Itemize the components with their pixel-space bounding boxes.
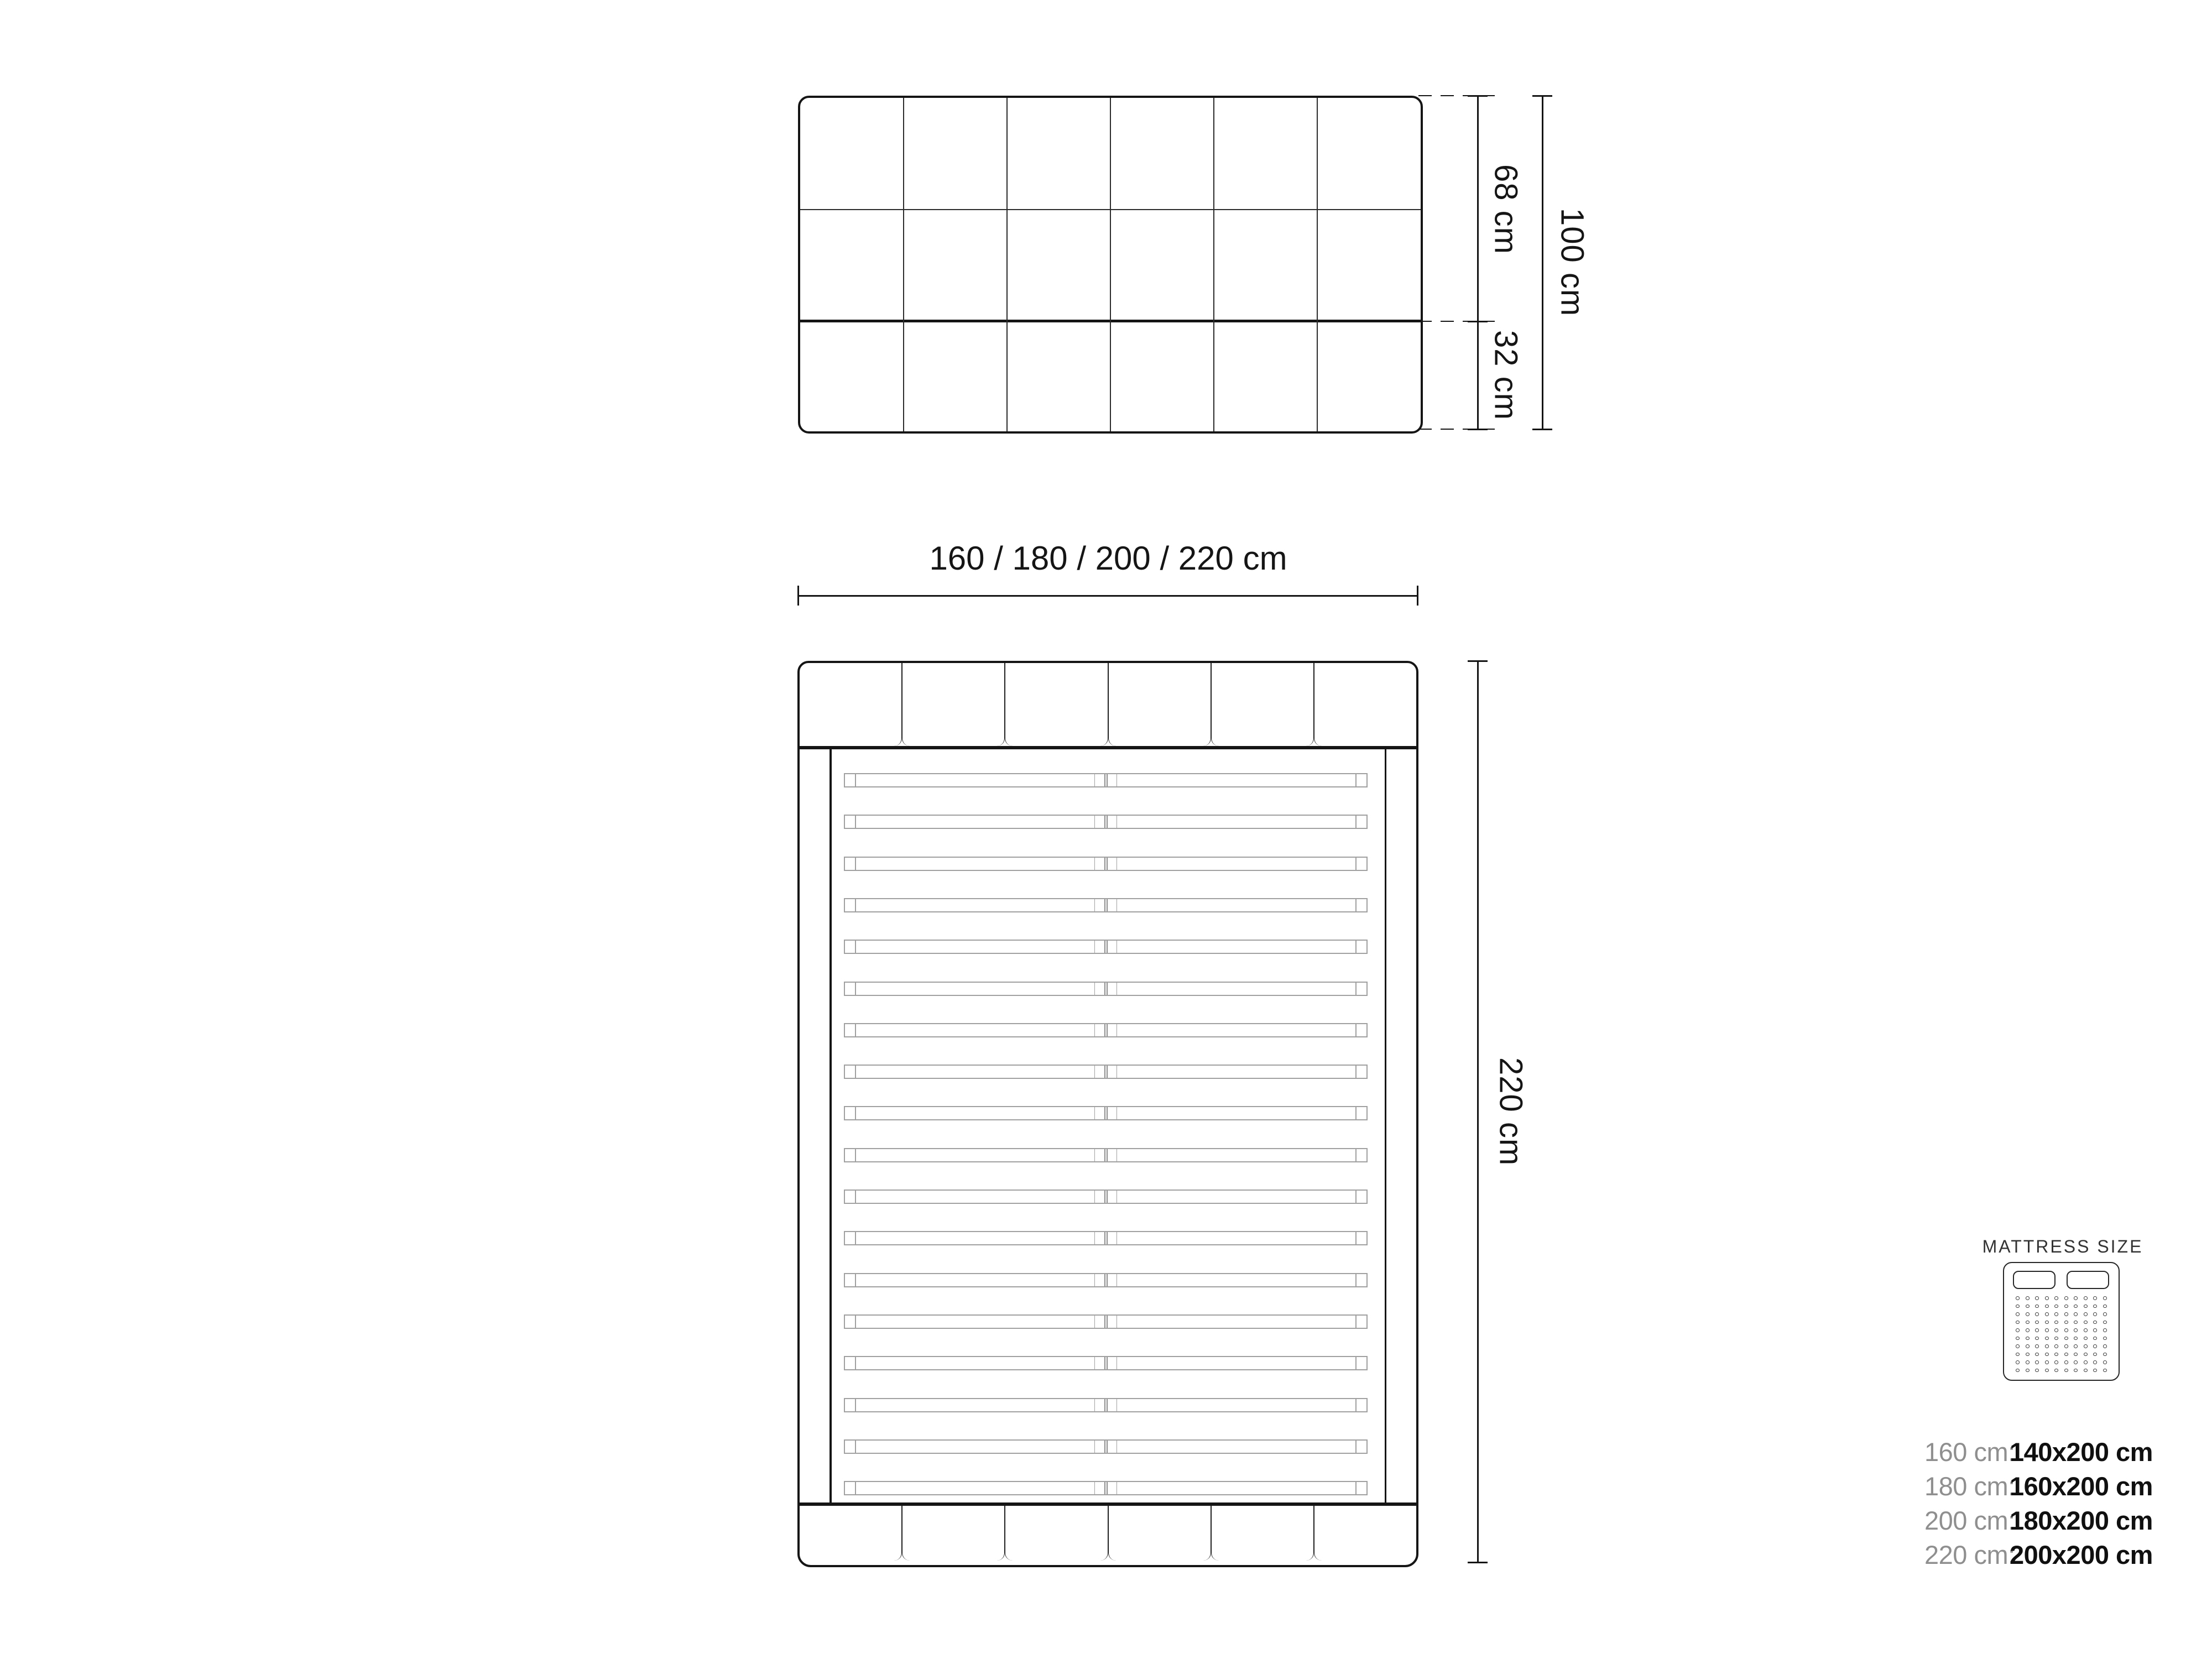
slat-joint-line xyxy=(855,1024,856,1036)
dimension-tick xyxy=(1532,95,1552,97)
pillow-icon xyxy=(2067,1271,2109,1289)
slat-joint-line xyxy=(1094,1482,1095,1494)
mattress-dot xyxy=(2016,1353,2020,1357)
mattress-dot xyxy=(2026,1360,2030,1364)
slat-joint-line xyxy=(1117,1024,1118,1036)
slat xyxy=(844,1023,1368,1037)
slat-joint-line xyxy=(1107,1357,1108,1369)
mattress-dot xyxy=(2093,1337,2097,1340)
mattress-dot xyxy=(2064,1337,2068,1340)
mattress-dot xyxy=(2026,1353,2030,1357)
slat xyxy=(844,1356,1368,1370)
mattress-size-row: 220 cm:200x200 cm xyxy=(1924,1540,2135,1574)
mattress-size-list: 160 cm:140x200 cm180 cm:160x200 cm200 cm… xyxy=(1924,1437,2135,1574)
mattress-dot xyxy=(2084,1305,2088,1308)
slat-area xyxy=(800,663,1416,1565)
mattress-dot xyxy=(2054,1344,2058,1348)
slat-joint-line xyxy=(1107,1107,1108,1119)
headboard-column-seam xyxy=(1213,98,1214,431)
mattress-dot xyxy=(2045,1360,2049,1364)
mattress-dot xyxy=(2016,1360,2020,1364)
mattress-dot xyxy=(2016,1369,2020,1373)
mattress-size-value: 180x200 cm xyxy=(2010,1505,2153,1536)
slat-joint-line xyxy=(1117,1316,1118,1328)
mattress-size-title: MATTRESS SIZE xyxy=(1969,1237,2157,1257)
slat-joint-line xyxy=(855,941,856,953)
mattress-dot xyxy=(2074,1360,2078,1364)
mattress-dot xyxy=(2016,1328,2020,1332)
slat-joint-line xyxy=(1355,899,1357,911)
mattress-dot xyxy=(2054,1337,2058,1340)
slat xyxy=(844,1273,1368,1287)
slat-joint-line xyxy=(1094,858,1095,870)
slat xyxy=(844,1398,1368,1412)
slat-joint-line xyxy=(855,816,856,828)
mattress-dot xyxy=(2064,1369,2068,1373)
pillow-icon xyxy=(2013,1271,2056,1289)
slat xyxy=(844,815,1368,829)
mattress-dot xyxy=(2074,1321,2078,1324)
headboard-panel-grid xyxy=(800,98,1421,431)
mattress-dot xyxy=(2074,1328,2078,1332)
dimension-tick xyxy=(1468,660,1488,662)
headboard-lower-height-label: 32 cm xyxy=(1485,321,1526,429)
mattress-dot xyxy=(2064,1344,2068,1348)
mattress-dot xyxy=(2093,1353,2097,1357)
slat-joint-line xyxy=(855,858,856,870)
slat-joint-line xyxy=(1355,1107,1357,1119)
slat-joint-line xyxy=(1107,1274,1108,1286)
slat-joint-line xyxy=(1355,1191,1357,1203)
mattress-dot xyxy=(2103,1344,2107,1348)
slat-joint-line xyxy=(1094,1024,1095,1036)
slat-joint-line xyxy=(1117,858,1118,870)
slat-joint-line xyxy=(1355,941,1357,953)
slat-joint-line xyxy=(1094,1274,1095,1286)
slat-joint-line xyxy=(1104,1357,1105,1369)
slat-joint-line xyxy=(1117,774,1118,786)
slat-joint-line xyxy=(1355,1066,1357,1078)
mattress-dot xyxy=(2084,1344,2088,1348)
slat xyxy=(844,1106,1368,1120)
slat-joint-line xyxy=(855,899,856,911)
slat-joint-line xyxy=(1117,1274,1118,1286)
mattress-dot xyxy=(2026,1321,2030,1324)
slat-joint-line xyxy=(1107,1191,1108,1203)
mattress-dot xyxy=(2084,1321,2088,1324)
mattress-dot xyxy=(2054,1296,2058,1300)
slat xyxy=(844,1065,1368,1079)
headboard-front-view xyxy=(798,96,1423,434)
slat-joint-line xyxy=(1107,1316,1108,1328)
mattress-size-row: 160 cm:140x200 cm xyxy=(1924,1437,2135,1471)
mattress-dot xyxy=(2045,1328,2049,1332)
mattress-size-value: 200x200 cm xyxy=(2010,1540,2153,1570)
length-dimension-line xyxy=(1477,661,1479,1563)
slat xyxy=(844,1439,1368,1454)
dimension-tick xyxy=(1417,586,1418,606)
slat-joint-line xyxy=(855,1399,856,1411)
mattress-dot xyxy=(2016,1305,2020,1308)
mattress-dot xyxy=(2016,1312,2020,1316)
slat-joint-line xyxy=(855,1191,856,1203)
mattress-dot xyxy=(2054,1353,2058,1357)
mattress-dot xyxy=(2045,1321,2049,1324)
mattress-dot xyxy=(2035,1328,2039,1332)
slat-joint-line xyxy=(1355,983,1357,995)
slat xyxy=(844,773,1368,787)
slat-joint-line xyxy=(855,1441,856,1453)
slat-joint-line xyxy=(1104,1482,1105,1494)
upholstery-panel xyxy=(902,1506,1005,1561)
mattress-dot xyxy=(2035,1305,2039,1308)
slat-joint-line xyxy=(1355,1441,1357,1453)
headboard-column-seam xyxy=(903,98,904,431)
mattress-dot xyxy=(2093,1360,2097,1364)
headboard-total-height-label: 100 cm xyxy=(1552,96,1593,429)
slat-joint-line xyxy=(1094,983,1095,995)
mattress-dot xyxy=(2103,1337,2107,1340)
mattress-dot xyxy=(2045,1369,2049,1373)
mattress-dot xyxy=(2016,1344,2020,1348)
mattress-dot xyxy=(2054,1360,2058,1364)
mattress-dot xyxy=(2093,1321,2097,1324)
mattress-dot xyxy=(2035,1344,2039,1348)
dimension-tick xyxy=(797,586,799,606)
mattress-icon xyxy=(2003,1262,2120,1381)
slat-joint-line xyxy=(1355,1399,1357,1411)
slat-joint-line xyxy=(1117,1149,1118,1161)
slat-joint-line xyxy=(1094,816,1095,828)
upholstery-panel xyxy=(800,1506,902,1561)
slat-joint-line xyxy=(1104,983,1105,995)
slat-joint-line xyxy=(1104,774,1105,786)
height-dimension-line-total xyxy=(1542,96,1543,429)
slat-joint-line xyxy=(1094,1107,1095,1119)
slat xyxy=(844,982,1368,996)
mattress-dot xyxy=(2093,1305,2097,1308)
slat-joint-line xyxy=(855,1274,856,1286)
mattress-size-value: 160x200 cm xyxy=(2010,1471,2153,1501)
mattress-dot xyxy=(2103,1296,2107,1300)
slat-joint-line xyxy=(1355,1482,1357,1494)
mattress-dot xyxy=(2074,1337,2078,1340)
mattress-dot xyxy=(2074,1305,2078,1308)
mattress-dot xyxy=(2064,1296,2068,1300)
slat-joint-line xyxy=(1117,1107,1118,1119)
slat-joint-line xyxy=(855,983,856,995)
slat-joint-line xyxy=(1117,1066,1118,1078)
slat-joint-line xyxy=(1117,1191,1118,1203)
mattress-dot xyxy=(2016,1337,2020,1340)
headboard-column-seam xyxy=(1317,98,1318,431)
dimension-tick xyxy=(1532,429,1552,430)
mattress-dot xyxy=(2035,1321,2039,1324)
slat-joint-line xyxy=(1117,983,1118,995)
slat-joint-line xyxy=(1117,1399,1118,1411)
slat xyxy=(844,1314,1368,1329)
slat-joint-line xyxy=(855,1066,856,1078)
slat-joint-line xyxy=(1104,1316,1105,1328)
slat xyxy=(844,898,1368,912)
mattress-dot xyxy=(2093,1296,2097,1300)
slat-joint-line xyxy=(1117,1441,1118,1453)
mattress-dot xyxy=(2035,1296,2039,1300)
frame-width-label: 220 cm: xyxy=(1924,1540,2002,1570)
mattress-dot xyxy=(2054,1312,2058,1316)
slat-joint-line xyxy=(1104,1066,1105,1078)
mattress-dot xyxy=(2035,1337,2039,1340)
slat-joint-line xyxy=(1094,1066,1095,1078)
height-dimension-line-inner xyxy=(1477,96,1479,429)
slat-joint-line xyxy=(1104,1024,1105,1036)
slat-joint-line xyxy=(1107,983,1108,995)
mattress-dot xyxy=(2054,1305,2058,1308)
mattress-dot xyxy=(2074,1296,2078,1300)
slat-joint-line xyxy=(1355,1357,1357,1369)
slat-joint-line xyxy=(1107,774,1108,786)
mattress-dot xyxy=(2103,1353,2107,1357)
mattress-dot xyxy=(2035,1369,2039,1373)
slat-joint-line xyxy=(1094,1399,1095,1411)
mattress-dot xyxy=(2064,1312,2068,1316)
mattress-dot xyxy=(2035,1360,2039,1364)
slat-joint-line xyxy=(1104,1191,1105,1203)
mattress-dot xyxy=(2084,1337,2088,1340)
slat-joint-line xyxy=(1107,1232,1108,1244)
slat-joint-line xyxy=(1104,1107,1105,1119)
slat-joint-line xyxy=(1355,858,1357,870)
dimension-tick xyxy=(1468,1562,1488,1563)
slat-joint-line xyxy=(1355,1316,1357,1328)
mattress-dot xyxy=(2035,1353,2039,1357)
mattress-dot xyxy=(2093,1312,2097,1316)
slat-joint-line xyxy=(1107,816,1108,828)
mattress-dot xyxy=(2103,1369,2107,1373)
slat-joint-line xyxy=(1107,899,1108,911)
frame-length-dimension-label: 220 cm xyxy=(1489,661,1533,1563)
slat-joint-line xyxy=(1355,1024,1357,1036)
slat-joint-line xyxy=(1094,941,1095,953)
mattress-dot xyxy=(2074,1312,2078,1316)
mattress-dot xyxy=(2026,1312,2030,1316)
slat-joint-line xyxy=(1107,1482,1108,1494)
mattress-dot xyxy=(2016,1296,2020,1300)
slat-joint-line xyxy=(855,1357,856,1369)
slat xyxy=(844,1148,1368,1162)
slat-joint-line xyxy=(1104,899,1105,911)
slat-joint-line xyxy=(855,1149,856,1161)
slat xyxy=(844,1231,1368,1245)
slat-joint-line xyxy=(1107,1149,1108,1161)
mattress-dot xyxy=(2084,1328,2088,1332)
dimension-tick xyxy=(1468,429,1488,430)
slat-joint-line xyxy=(1107,941,1108,953)
technical-drawing-canvas: 68 cm 32 cm 100 cm 160 / 180 / 200 / 220… xyxy=(0,0,2212,1659)
mattress-dot xyxy=(2093,1328,2097,1332)
slat-joint-line xyxy=(1104,1399,1105,1411)
mattress-dot xyxy=(2026,1369,2030,1373)
mattress-dot xyxy=(2045,1305,2049,1308)
mattress-dot xyxy=(2084,1369,2088,1373)
upholstery-panel xyxy=(1108,1506,1211,1561)
slat xyxy=(844,857,1368,871)
mattress-dot xyxy=(2103,1321,2107,1324)
mattress-dot xyxy=(2016,1321,2020,1324)
mattress-dot xyxy=(2064,1328,2068,1332)
slat-joint-line xyxy=(1117,816,1118,828)
mattress-dot xyxy=(2064,1353,2068,1357)
slat-joint-line xyxy=(1094,1232,1095,1244)
frame-footboard-strip xyxy=(800,1506,1416,1561)
slat-joint-line xyxy=(1094,1316,1095,1328)
mattress-dot xyxy=(2074,1344,2078,1348)
slat-joint-line xyxy=(1104,1232,1105,1244)
slat-joint-line xyxy=(1107,1441,1108,1453)
upholstery-panel xyxy=(1211,1506,1314,1561)
slat-joint-line xyxy=(1117,1232,1118,1244)
mattress-dot xyxy=(2084,1353,2088,1357)
slat-joint-line xyxy=(1355,1232,1357,1244)
frame-width-label: 200 cm: xyxy=(1924,1505,2002,1536)
frame-width-dimension-label: 160 / 180 / 200 / 220 cm xyxy=(798,539,1418,577)
mattress-dot xyxy=(2084,1360,2088,1364)
mattress-dot xyxy=(2074,1369,2078,1373)
mattress-dot xyxy=(2054,1369,2058,1373)
headboard-column-seam xyxy=(1110,98,1111,431)
slat-joint-line xyxy=(1104,858,1105,870)
mattress-dot xyxy=(2064,1360,2068,1364)
mattress-size-value: 140x200 cm xyxy=(2010,1437,2153,1467)
slat-joint-line xyxy=(1094,1191,1095,1203)
slat-joint-line xyxy=(1107,1024,1108,1036)
slat-joint-line xyxy=(1117,1482,1118,1494)
dimension-tick xyxy=(1468,321,1488,322)
mattress-dots xyxy=(2013,1294,2110,1374)
mattress-dot xyxy=(2026,1337,2030,1340)
mattress-dot xyxy=(2035,1312,2039,1316)
slat-joint-line xyxy=(1094,1357,1095,1369)
mattress-dot xyxy=(2074,1353,2078,1357)
mattress-dot xyxy=(2054,1328,2058,1332)
upholstery-panel xyxy=(1005,1506,1108,1561)
mattress-dot xyxy=(2084,1296,2088,1300)
slat xyxy=(844,1481,1368,1495)
slat-joint-line xyxy=(1094,1441,1095,1453)
mattress-dot xyxy=(2093,1344,2097,1348)
slat-joint-line xyxy=(1117,941,1118,953)
mattress-dot xyxy=(2026,1344,2030,1348)
mattress-size-row: 180 cm:160x200 cm xyxy=(1924,1471,2135,1505)
dimension-tick xyxy=(1468,95,1488,97)
mattress-dot xyxy=(2026,1296,2030,1300)
bed-frame-top-view xyxy=(797,661,1418,1567)
slat-joint-line xyxy=(1107,1399,1108,1411)
slat-joint-line xyxy=(1355,1149,1357,1161)
slat xyxy=(844,1190,1368,1204)
frame-width-label: 160 cm: xyxy=(1924,1437,2002,1467)
slat-joint-line xyxy=(1107,858,1108,870)
slat-joint-line xyxy=(855,774,856,786)
frame-width-label: 180 cm: xyxy=(1924,1471,2002,1501)
mattress-dot xyxy=(2045,1296,2049,1300)
slat-joint-line xyxy=(1094,1149,1095,1161)
slat-joint-line xyxy=(1355,816,1357,828)
mattress-dot xyxy=(2064,1321,2068,1324)
slat-joint-line xyxy=(1117,1357,1118,1369)
slat-joint-line xyxy=(855,1482,856,1494)
headboard-column-seam xyxy=(1006,98,1008,431)
mattress-dot xyxy=(2026,1305,2030,1308)
slat-joint-line xyxy=(855,1232,856,1244)
slat-joint-line xyxy=(1107,1066,1108,1078)
mattress-dot xyxy=(2045,1312,2049,1316)
mattress-dot xyxy=(2103,1305,2107,1308)
slat-joint-line xyxy=(1104,941,1105,953)
mattress-dot xyxy=(2045,1344,2049,1348)
slat-joint-line xyxy=(1355,774,1357,786)
slat-joint-line xyxy=(855,1107,856,1119)
mattress-dot xyxy=(2103,1360,2107,1364)
slat xyxy=(844,940,1368,954)
mattress-dot xyxy=(2054,1321,2058,1324)
mattress-dot xyxy=(2026,1328,2030,1332)
slat-joint-line xyxy=(855,1316,856,1328)
mattress-dot xyxy=(2045,1337,2049,1340)
mattress-dot xyxy=(2103,1312,2107,1316)
slat-joint-line xyxy=(1355,1274,1357,1286)
slat-joint-line xyxy=(1104,1149,1105,1161)
slat-joint-line xyxy=(1104,1441,1105,1453)
slat-joint-line xyxy=(1104,816,1105,828)
mattress-dot xyxy=(2093,1369,2097,1373)
slat-joint-line xyxy=(1094,774,1095,786)
headboard-upper-height-label: 68 cm xyxy=(1485,96,1526,322)
mattress-dot xyxy=(2084,1312,2088,1316)
upholstery-panel xyxy=(1314,1506,1416,1561)
mattress-dot xyxy=(2103,1328,2107,1332)
width-dimension-line xyxy=(798,595,1418,597)
mattress-dot xyxy=(2064,1305,2068,1308)
mattress-size-row: 200 cm:180x200 cm xyxy=(1924,1505,2135,1540)
slat-joint-line xyxy=(1117,899,1118,911)
slat-joint-line xyxy=(1094,899,1095,911)
slat-joint-line xyxy=(1104,1274,1105,1286)
mattress-dot xyxy=(2045,1353,2049,1357)
